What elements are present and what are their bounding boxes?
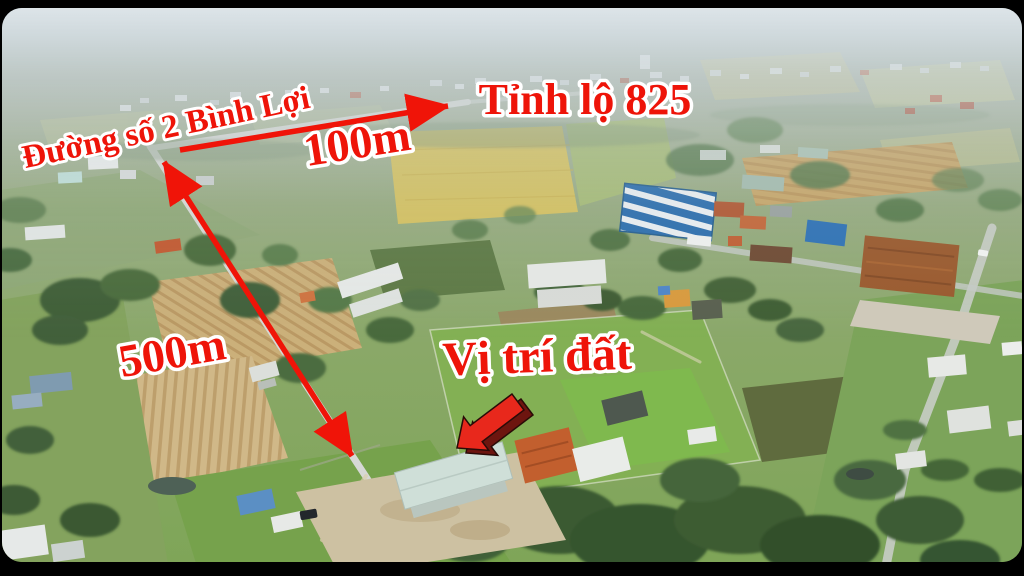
video-frame: Đường số 2 Bình Lợi Tỉnh lộ 825 100m 500… <box>0 0 1024 576</box>
pond-small <box>846 468 874 480</box>
aerial-photo: Đường số 2 Bình Lợi Tỉnh lộ 825 100m 500… <box>0 0 1024 576</box>
destination-road-label: Tỉnh lộ 825 <box>479 75 692 124</box>
pond <box>148 477 196 495</box>
haze-overlay <box>0 0 1024 340</box>
land-location-label: Vị trí đất <box>441 327 632 387</box>
